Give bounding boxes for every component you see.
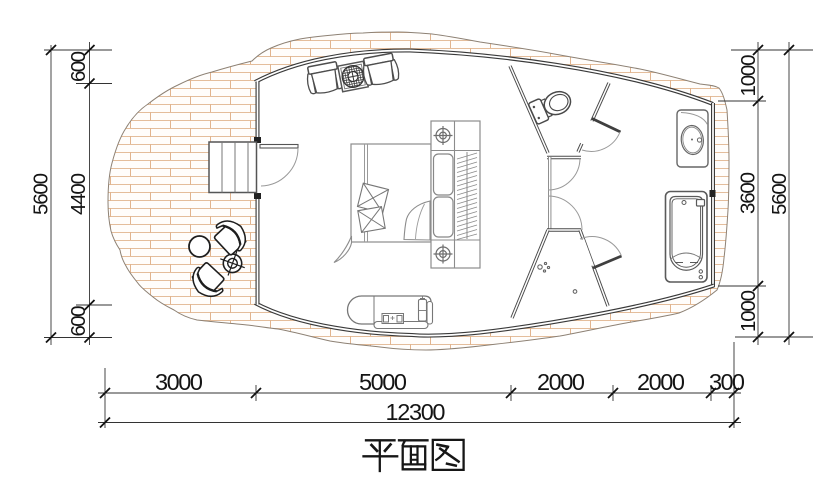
svg-text:1000: 1000 (737, 55, 760, 97)
svg-text:3600: 3600 (737, 172, 760, 214)
svg-text:1000: 1000 (737, 290, 760, 332)
svg-text:600: 600 (67, 306, 90, 337)
svg-text:600: 600 (67, 51, 90, 82)
svg-text:5600: 5600 (30, 173, 53, 215)
svg-text:3000: 3000 (155, 369, 203, 395)
svg-text:5600: 5600 (768, 173, 791, 215)
svg-text:5000: 5000 (359, 369, 407, 395)
svg-text:2000: 2000 (637, 369, 685, 395)
svg-text:12300: 12300 (386, 399, 446, 425)
svg-text:2000: 2000 (537, 369, 585, 395)
svg-text:4400: 4400 (67, 173, 90, 215)
svg-text:300: 300 (709, 369, 745, 395)
